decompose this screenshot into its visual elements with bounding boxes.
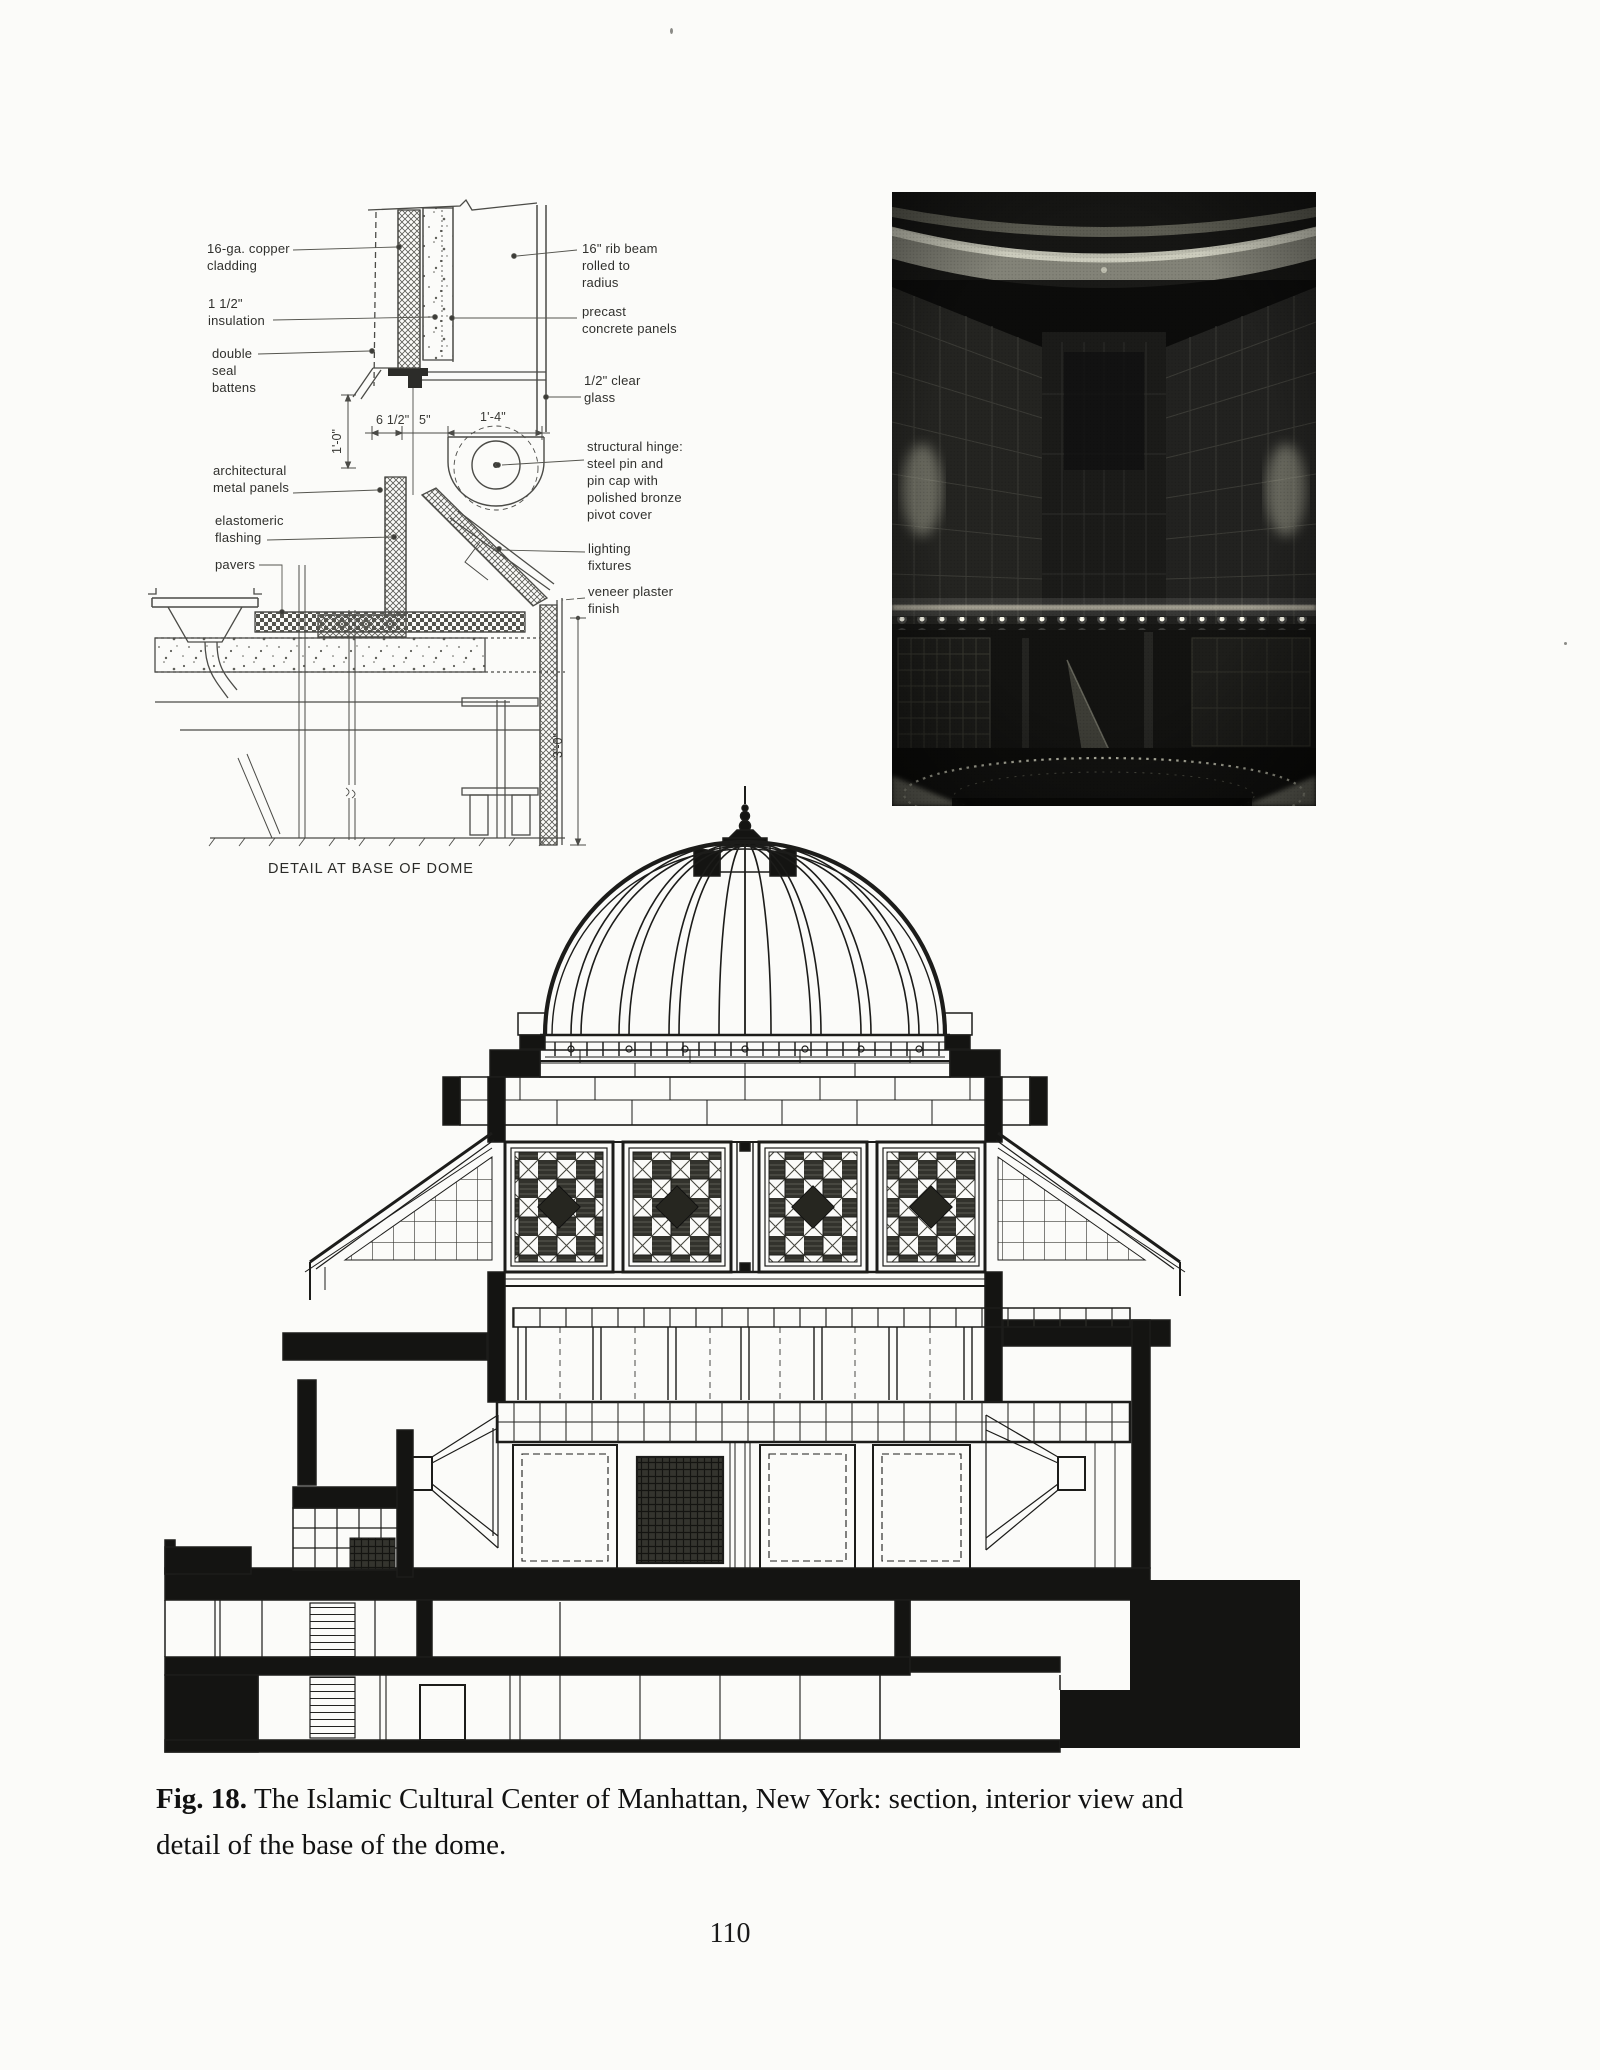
dim-text: 1'-4" [480,410,506,424]
label-flashing: elastomericflashing [215,512,284,546]
label-clear-glass: 1/2" clearglass [584,372,640,406]
label-line: radius [582,275,619,290]
label-line: glass [584,390,615,405]
label-veneer-plaster: veneer plasterfinish [588,583,673,617]
interior-view-photo [892,192,1316,806]
label-line: fixtures [588,558,632,573]
label-line: steel pin and [587,456,663,471]
label-lighting-fixtures: lightingfixtures [588,540,632,574]
dim-1ft-0in: 1'-0" [330,402,344,454]
dim-6half: 6 1/2" [376,412,409,429]
dim-text: 1'-0" [330,429,344,454]
label-line: polished bronze [587,490,682,505]
scan-speck [1564,642,1567,645]
label-line: 1 1/2" [208,296,243,311]
label-metal-panels: architecturalmetal panels [213,462,289,496]
label-line: pivot cover [587,507,652,522]
dim-text: 6 1/2" [376,413,409,427]
label-line: metal panels [213,480,289,495]
dim-3ft-0in: 3'-0" [551,700,565,758]
label-line: double [212,346,252,361]
label-line: seal [212,363,237,378]
dim-text: 3'-0" [551,733,565,758]
label-line: 16" rib beam [582,241,658,256]
label-line: flashing [215,530,261,545]
label-battens: doublesealbattens [212,345,256,396]
label-line: concrete panels [582,321,677,336]
interior-photo-art [892,192,1316,806]
label-pavers: pavers [215,556,255,573]
label-line: rolled to [582,258,630,273]
label-line: lighting [588,541,631,556]
label-structural-hinge: structural hinge:steel pin andpin cap wi… [587,438,683,523]
label-line: cladding [207,258,257,273]
label-line: finish [588,601,620,616]
label-line: veneer plaster [588,584,673,599]
dim-text: 5" [419,413,431,427]
scan-speck [670,28,673,34]
figure-caption-line2: detail of the base of the dome. [156,1829,506,1861]
label-line: battens [212,380,256,395]
dim-1ft-4in: 1'-4" [480,409,506,426]
label-line: 16-ga. copper [207,241,290,256]
label-line: architectural [213,463,286,478]
label-line: 1/2" clear [584,373,640,388]
scanned-book-page: 16-ga. coppercladding 1 1/2"insulation d… [0,0,1600,2070]
label-precast: precastconcrete panels [582,303,677,337]
label-line: precast [582,304,626,319]
label-line: pin cap with [587,473,658,488]
label-copper-cladding: 16-ga. coppercladding [207,240,290,274]
label-line: structural hinge: [587,439,683,454]
label-rib-beam: 16" rib beamrolled toradius [582,240,658,291]
page-number: 110 [640,1918,820,1950]
building-section-drawing [120,780,1320,1755]
label-insulation: 1 1/2"insulation [208,295,265,329]
dim-5in: 5" [419,412,431,429]
label-line: pavers [215,557,255,572]
figure-caption-label: Fig. 18. [156,1783,247,1815]
figure-caption-line1: The Islamic Cultural Center of Manhattan… [254,1783,1183,1815]
label-line: insulation [208,313,265,328]
figure-caption: Fig. 18.The Islamic Cultural Center of M… [156,1776,1316,1868]
label-line: elastomeric [215,513,284,528]
page-number-text: 110 [710,1918,751,1949]
